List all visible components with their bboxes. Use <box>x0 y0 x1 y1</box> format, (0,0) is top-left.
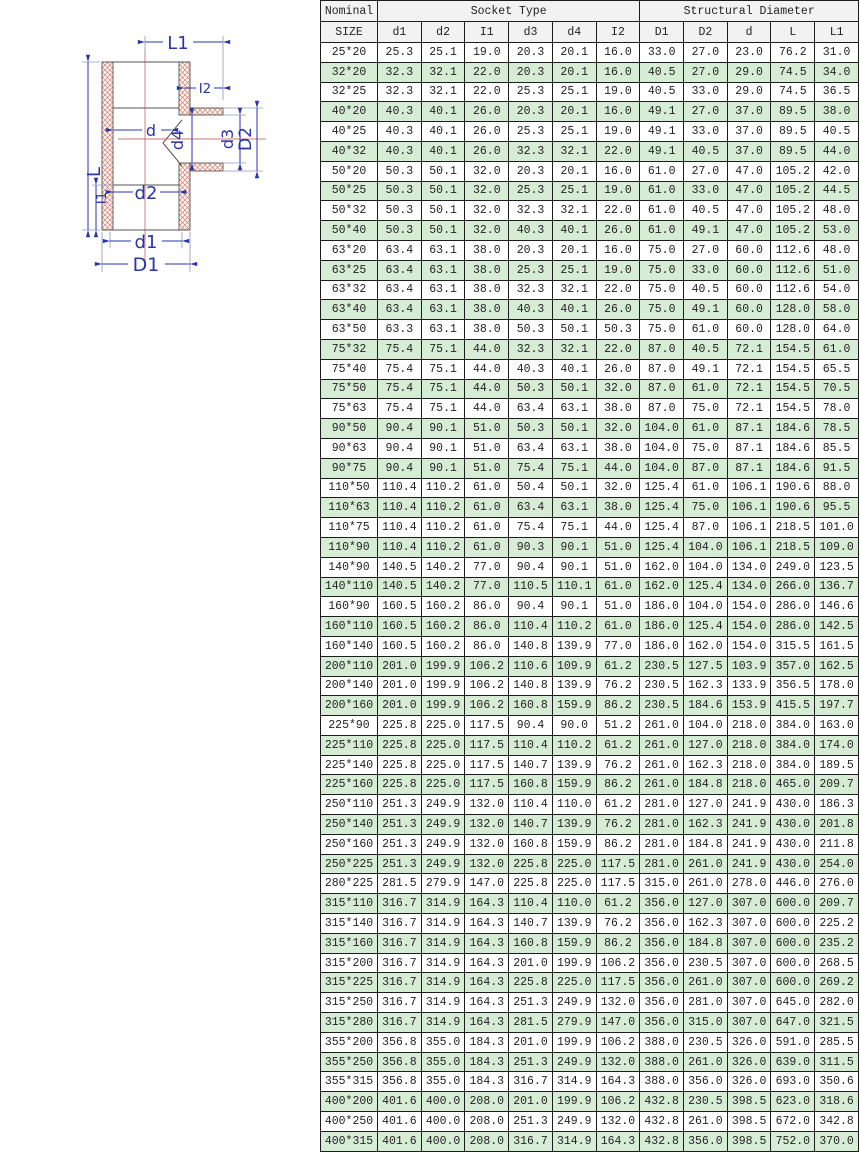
value-cell: 356.0 <box>640 933 684 953</box>
table-row: 160*110160.5160.286.0110.4110.261.0186.0… <box>321 617 859 637</box>
value-cell: 90.1 <box>552 597 596 617</box>
value-cell: 87.0 <box>640 359 684 379</box>
value-cell: 398.5 <box>727 1092 771 1112</box>
table-row: 400*315401.6400.0208.0316.7314.9164.3432… <box>321 1131 859 1151</box>
value-cell: 49.1 <box>684 359 728 379</box>
value-cell: 32.0 <box>596 419 640 439</box>
value-cell: 316.7 <box>378 953 422 973</box>
value-cell: 76.2 <box>596 815 640 835</box>
value-cell: 44.5 <box>815 181 859 201</box>
value-cell: 160.8 <box>509 834 553 854</box>
value-cell: 186.0 <box>640 617 684 637</box>
value-cell: 19.0 <box>596 260 640 280</box>
table-row: 315*110316.7314.9164.3110.4110.061.2356.… <box>321 894 859 914</box>
value-cell: 61.2 <box>596 656 640 676</box>
value-cell: 384.0 <box>771 735 815 755</box>
value-cell: 48.0 <box>815 240 859 260</box>
size-cell: 400*250 <box>321 1112 378 1132</box>
table-row: 400*200401.6400.0208.0201.0199.9106.2432… <box>321 1092 859 1112</box>
value-cell: 32.1 <box>552 280 596 300</box>
value-cell: 225.8 <box>378 775 422 795</box>
table-row: 50*2050.350.132.020.320.116.061.027.047.… <box>321 161 859 181</box>
value-cell: 89.5 <box>771 122 815 142</box>
value-cell: 61.0 <box>640 181 684 201</box>
header-col-L: L <box>771 22 815 43</box>
value-cell: 112.6 <box>771 240 815 260</box>
value-cell: 77.0 <box>596 636 640 656</box>
table-row: 63*5063.363.138.050.350.150.375.061.060.… <box>321 320 859 340</box>
value-cell: 63.4 <box>378 300 422 320</box>
table-row: 200*160201.0199.9106.2160.8159.986.2230.… <box>321 696 859 716</box>
value-cell: 76.2 <box>771 43 815 63</box>
value-cell: 19.0 <box>465 43 509 63</box>
value-cell: 356.0 <box>640 1013 684 1033</box>
value-cell: 140.7 <box>509 755 553 775</box>
value-cell: 281.0 <box>640 854 684 874</box>
value-cell: 27.0 <box>684 43 728 63</box>
value-cell: 63.3 <box>378 320 422 340</box>
value-cell: 106.1 <box>727 537 771 557</box>
value-cell: 400.0 <box>421 1092 465 1112</box>
value-cell: 53.0 <box>815 221 859 241</box>
size-cell: 75*63 <box>321 399 378 419</box>
value-cell: 199.9 <box>421 656 465 676</box>
value-cell: 32.0 <box>465 161 509 181</box>
table-row: 110*50110.4110.261.050.450.132.0125.461.… <box>321 478 859 498</box>
value-cell: 87.0 <box>684 458 728 478</box>
value-cell: 286.0 <box>771 597 815 617</box>
value-cell: 110.2 <box>421 537 465 557</box>
value-cell: 201.0 <box>378 656 422 676</box>
value-cell: 269.2 <box>815 973 859 993</box>
value-cell: 370.0 <box>815 1131 859 1151</box>
value-cell: 38.0 <box>596 438 640 458</box>
value-cell: 140.8 <box>509 636 553 656</box>
value-cell: 307.0 <box>727 953 771 973</box>
table-row: 63*2563.463.138.025.325.119.075.033.060.… <box>321 260 859 280</box>
value-cell: 87.0 <box>640 379 684 399</box>
value-cell: 400.0 <box>421 1131 465 1151</box>
value-cell: 127.0 <box>684 795 728 815</box>
value-cell: 75.0 <box>684 498 728 518</box>
value-cell: 139.9 <box>552 755 596 775</box>
header-col-d: d <box>727 22 771 43</box>
value-cell: 276.0 <box>815 874 859 894</box>
value-cell: 184.6 <box>771 419 815 439</box>
value-cell: 142.5 <box>815 617 859 637</box>
table-row: 50*3250.350.132.032.332.122.061.040.547.… <box>321 201 859 221</box>
value-cell: 125.4 <box>684 577 728 597</box>
value-cell: 184.6 <box>771 458 815 478</box>
value-cell: 40.3 <box>378 141 422 161</box>
value-cell: 104.0 <box>684 597 728 617</box>
size-cell: 355*200 <box>321 1032 378 1052</box>
spec-table-body: 25*2025.325.119.020.320.116.033.027.023.… <box>321 43 859 1152</box>
value-cell: 446.0 <box>771 874 815 894</box>
value-cell: 32.1 <box>421 82 465 102</box>
value-cell: 356.0 <box>640 993 684 1013</box>
value-cell: 162.0 <box>640 577 684 597</box>
value-cell: 316.7 <box>378 933 422 953</box>
value-cell: 139.9 <box>552 914 596 934</box>
value-cell: 591.0 <box>771 1032 815 1052</box>
value-cell: 251.3 <box>378 815 422 835</box>
table-row: 110*75110.4110.261.075.475.144.0125.487.… <box>321 518 859 538</box>
value-cell: 251.3 <box>509 993 553 1013</box>
value-cell: 29.0 <box>727 62 771 82</box>
size-cell: 250*225 <box>321 854 378 874</box>
value-cell: 639.0 <box>771 1052 815 1072</box>
value-cell: 147.0 <box>596 1013 640 1033</box>
table-row: 225*160225.8225.0117.5160.8159.986.2261.… <box>321 775 859 795</box>
value-cell: 110.1 <box>552 577 596 597</box>
table-row: 200*110201.0199.9106.2110.6109.961.2230.… <box>321 656 859 676</box>
value-cell: 90.3 <box>509 537 553 557</box>
value-cell: 40.1 <box>421 102 465 122</box>
value-cell: 63.1 <box>552 498 596 518</box>
value-cell: 27.0 <box>684 161 728 181</box>
value-cell: 60.0 <box>727 280 771 300</box>
table-row: 315*225316.7314.9164.3225.8225.0117.5356… <box>321 973 859 993</box>
value-cell: 117.5 <box>465 775 509 795</box>
value-cell: 154.5 <box>771 399 815 419</box>
value-cell: 20.1 <box>552 62 596 82</box>
value-cell: 225.0 <box>421 755 465 775</box>
value-cell: 50.3 <box>378 221 422 241</box>
value-cell: 225.0 <box>552 854 596 874</box>
value-cell: 282.0 <box>815 993 859 1013</box>
value-cell: 268.5 <box>815 953 859 973</box>
value-cell: 38.0 <box>465 260 509 280</box>
value-cell: 201.0 <box>378 696 422 716</box>
value-cell: 19.0 <box>596 181 640 201</box>
table-row: 250*225251.3249.9132.0225.8225.0117.5281… <box>321 854 859 874</box>
value-cell: 184.3 <box>465 1052 509 1072</box>
value-cell: 307.0 <box>727 973 771 993</box>
value-cell: 112.6 <box>771 280 815 300</box>
value-cell: 162.0 <box>684 636 728 656</box>
value-cell: 147.0 <box>465 874 509 894</box>
value-cell: 314.9 <box>421 973 465 993</box>
value-cell: 160.2 <box>421 636 465 656</box>
table-header-column-row: SIZE d1 d2 I1 d3 d4 I2 D1 D2 d L L1 <box>321 22 859 43</box>
value-cell: 106.1 <box>727 518 771 538</box>
value-cell: 401.6 <box>378 1112 422 1132</box>
value-cell: 63.1 <box>421 320 465 340</box>
value-cell: 218.0 <box>727 735 771 755</box>
value-cell: 161.5 <box>815 636 859 656</box>
value-cell: 123.5 <box>815 557 859 577</box>
value-cell: 117.5 <box>465 755 509 775</box>
size-cell: 32*25 <box>321 82 378 102</box>
value-cell: 40.1 <box>552 300 596 320</box>
value-cell: 87.1 <box>727 419 771 439</box>
value-cell: 199.9 <box>552 953 596 973</box>
value-cell: 430.0 <box>771 815 815 835</box>
table-row: 25*2025.325.119.020.320.116.033.027.023.… <box>321 43 859 63</box>
value-cell: 22.0 <box>596 141 640 161</box>
value-cell: 199.9 <box>421 696 465 716</box>
value-cell: 106.2 <box>596 953 640 973</box>
value-cell: 230.5 <box>640 696 684 716</box>
value-cell: 75.4 <box>378 399 422 419</box>
value-cell: 75.4 <box>378 379 422 399</box>
value-cell: 209.7 <box>815 894 859 914</box>
value-cell: 140.8 <box>509 676 553 696</box>
size-cell: 25*20 <box>321 43 378 63</box>
value-cell: 209.7 <box>815 775 859 795</box>
table-row: 63*3263.463.138.032.332.122.075.040.560.… <box>321 280 859 300</box>
value-cell: 117.5 <box>465 716 509 736</box>
size-cell: 63*25 <box>321 260 378 280</box>
table-row: 355*200356.8355.0184.3201.0199.9106.2388… <box>321 1032 859 1052</box>
value-cell: 38.0 <box>465 240 509 260</box>
value-cell: 63.1 <box>421 260 465 280</box>
table-row: 40*2040.340.126.020.320.116.049.127.037.… <box>321 102 859 122</box>
value-cell: 33.0 <box>684 260 728 280</box>
size-cell: 40*20 <box>321 102 378 122</box>
value-cell: 186.0 <box>640 597 684 617</box>
value-cell: 26.0 <box>465 141 509 161</box>
value-cell: 326.0 <box>727 1052 771 1072</box>
value-cell: 90.4 <box>378 458 422 478</box>
value-cell: 40.5 <box>815 122 859 142</box>
value-cell: 249.9 <box>421 815 465 835</box>
value-cell: 103.9 <box>727 656 771 676</box>
value-cell: 251.3 <box>378 834 422 854</box>
value-cell: 40.5 <box>684 141 728 161</box>
header-nominal: Nominal <box>321 1 378 22</box>
value-cell: 61.0 <box>465 478 509 498</box>
value-cell: 281.0 <box>640 815 684 835</box>
value-cell: 38.0 <box>465 320 509 340</box>
table-row: 40*2540.340.126.025.325.119.049.133.037.… <box>321 122 859 142</box>
size-cell: 315*140 <box>321 914 378 934</box>
value-cell: 355.0 <box>421 1032 465 1052</box>
value-cell: 60.0 <box>727 260 771 280</box>
value-cell: 279.9 <box>552 1013 596 1033</box>
value-cell: 32.3 <box>509 201 553 221</box>
value-cell: 278.0 <box>727 874 771 894</box>
value-cell: 110.2 <box>421 498 465 518</box>
size-cell: 200*160 <box>321 696 378 716</box>
value-cell: 356.0 <box>640 973 684 993</box>
value-cell: 342.8 <box>815 1112 859 1132</box>
table-row: 63*4063.463.138.040.340.126.075.049.160.… <box>321 300 859 320</box>
value-cell: 63.4 <box>378 280 422 300</box>
value-cell: 50.3 <box>378 161 422 181</box>
value-cell: 125.4 <box>640 537 684 557</box>
size-cell: 315*160 <box>321 933 378 953</box>
value-cell: 63.4 <box>509 498 553 518</box>
value-cell: 50.4 <box>509 478 553 498</box>
value-cell: 230.5 <box>684 953 728 973</box>
value-cell: 63.4 <box>509 399 553 419</box>
value-cell: 110.0 <box>552 894 596 914</box>
table-header-group-row: Nominal Socket Type Structural Diameter <box>321 1 859 22</box>
value-cell: 27.0 <box>684 240 728 260</box>
value-cell: 42.0 <box>815 161 859 181</box>
value-cell: 78.0 <box>815 399 859 419</box>
value-cell: 432.8 <box>640 1092 684 1112</box>
value-cell: 600.0 <box>771 914 815 934</box>
value-cell: 218.0 <box>727 775 771 795</box>
value-cell: 279.9 <box>421 874 465 894</box>
dim-label-d3: d3 <box>218 129 237 149</box>
size-cell: 250*160 <box>321 834 378 854</box>
size-cell: 110*75 <box>321 518 378 538</box>
table-row: 50*4050.350.132.040.340.126.061.049.147.… <box>321 221 859 241</box>
value-cell: 61.0 <box>684 419 728 439</box>
value-cell: 225.8 <box>378 716 422 736</box>
size-cell: 355*315 <box>321 1072 378 1092</box>
value-cell: 50.1 <box>552 419 596 439</box>
size-cell: 280*225 <box>321 874 378 894</box>
value-cell: 314.9 <box>421 953 465 973</box>
value-cell: 87.0 <box>640 339 684 359</box>
value-cell: 40.5 <box>640 62 684 82</box>
value-cell: 32.3 <box>378 62 422 82</box>
size-cell: 63*20 <box>321 240 378 260</box>
value-cell: 261.0 <box>640 775 684 795</box>
value-cell: 225.8 <box>509 874 553 894</box>
value-cell: 16.0 <box>596 102 640 122</box>
value-cell: 164.3 <box>596 1072 640 1092</box>
value-cell: 105.2 <box>771 201 815 221</box>
value-cell: 225.2 <box>815 914 859 934</box>
value-cell: 356.8 <box>378 1072 422 1092</box>
value-cell: 16.0 <box>596 240 640 260</box>
value-cell: 89.5 <box>771 141 815 161</box>
value-cell: 40.3 <box>378 122 422 142</box>
value-cell: 38.0 <box>596 498 640 518</box>
value-cell: 26.0 <box>465 102 509 122</box>
dim-label-d4: d4 <box>168 130 187 150</box>
value-cell: 90.0 <box>552 716 596 736</box>
value-cell: 208.0 <box>465 1112 509 1132</box>
value-cell: 132.0 <box>465 854 509 874</box>
value-cell: 384.0 <box>771 755 815 775</box>
value-cell: 249.9 <box>421 834 465 854</box>
value-cell: 316.7 <box>378 993 422 1013</box>
value-cell: 201.0 <box>509 1032 553 1052</box>
table-row: 140*90140.5140.277.090.490.151.0162.0104… <box>321 557 859 577</box>
value-cell: 32.0 <box>465 201 509 221</box>
value-cell: 32.1 <box>421 62 465 82</box>
value-cell: 40.3 <box>509 221 553 241</box>
value-cell: 20.1 <box>552 240 596 260</box>
value-cell: 154.5 <box>771 359 815 379</box>
value-cell: 356.0 <box>640 894 684 914</box>
value-cell: 356.0 <box>684 1131 728 1151</box>
value-cell: 356.5 <box>771 676 815 696</box>
value-cell: 40.1 <box>421 122 465 142</box>
size-cell: 315*280 <box>321 1013 378 1033</box>
dim-label-I1: I1 <box>94 192 110 205</box>
value-cell: 20.3 <box>509 240 553 260</box>
value-cell: 356.8 <box>378 1052 422 1072</box>
value-cell: 261.0 <box>640 735 684 755</box>
value-cell: 44.0 <box>465 339 509 359</box>
value-cell: 307.0 <box>727 914 771 934</box>
value-cell: 146.6 <box>815 597 859 617</box>
value-cell: 251.3 <box>378 854 422 874</box>
value-cell: 32.3 <box>378 82 422 102</box>
size-cell: 110*63 <box>321 498 378 518</box>
value-cell: 95.5 <box>815 498 859 518</box>
value-cell: 261.0 <box>640 755 684 775</box>
value-cell: 398.5 <box>727 1131 771 1151</box>
value-cell: 74.5 <box>771 82 815 102</box>
value-cell: 164.3 <box>465 993 509 1013</box>
value-cell: 430.0 <box>771 834 815 854</box>
value-cell: 110.0 <box>552 795 596 815</box>
value-cell: 40.1 <box>421 141 465 161</box>
value-cell: 218.0 <box>727 755 771 775</box>
value-cell: 32.3 <box>509 339 553 359</box>
value-cell: 225.0 <box>421 775 465 795</box>
value-cell: 110.6 <box>509 656 553 676</box>
value-cell: 75.0 <box>640 240 684 260</box>
value-cell: 140.7 <box>509 815 553 835</box>
value-cell: 25.3 <box>509 260 553 280</box>
value-cell: 50.1 <box>421 201 465 221</box>
value-cell: 25.1 <box>552 181 596 201</box>
value-cell: 61.0 <box>815 339 859 359</box>
value-cell: 86.0 <box>465 597 509 617</box>
value-cell: 75.1 <box>552 458 596 478</box>
value-cell: 398.5 <box>727 1112 771 1132</box>
value-cell: 261.0 <box>640 716 684 736</box>
value-cell: 225.0 <box>552 973 596 993</box>
size-cell: 160*90 <box>321 597 378 617</box>
value-cell: 600.0 <box>771 973 815 993</box>
value-cell: 47.0 <box>727 181 771 201</box>
value-cell: 225.0 <box>421 735 465 755</box>
value-cell: 22.0 <box>596 201 640 221</box>
value-cell: 51.0 <box>465 438 509 458</box>
value-cell: 44.0 <box>465 399 509 419</box>
value-cell: 241.9 <box>727 795 771 815</box>
value-cell: 184.3 <box>465 1072 509 1092</box>
value-cell: 388.0 <box>640 1072 684 1092</box>
value-cell: 752.0 <box>771 1131 815 1151</box>
value-cell: 110.5 <box>509 577 553 597</box>
size-cell: 250*110 <box>321 795 378 815</box>
value-cell: 225.0 <box>552 874 596 894</box>
value-cell: 159.9 <box>552 933 596 953</box>
value-cell: 20.1 <box>552 161 596 181</box>
value-cell: 32.0 <box>596 379 640 399</box>
value-cell: 104.0 <box>640 419 684 439</box>
value-cell: 307.0 <box>727 993 771 1013</box>
value-cell: 63.4 <box>378 240 422 260</box>
value-cell: 49.1 <box>684 300 728 320</box>
value-cell: 162.3 <box>684 914 728 934</box>
value-cell: 133.9 <box>727 676 771 696</box>
value-cell: 50.1 <box>421 181 465 201</box>
value-cell: 281.0 <box>640 834 684 854</box>
value-cell: 38.0 <box>815 102 859 122</box>
value-cell: 50.3 <box>509 419 553 439</box>
value-cell: 63.1 <box>421 300 465 320</box>
value-cell: 72.1 <box>727 399 771 419</box>
table-row: 160*90160.5160.286.090.490.151.0186.0104… <box>321 597 859 617</box>
value-cell: 51.0 <box>465 458 509 478</box>
value-cell: 261.0 <box>684 874 728 894</box>
value-cell: 32.1 <box>552 141 596 161</box>
value-cell: 112.6 <box>771 260 815 280</box>
